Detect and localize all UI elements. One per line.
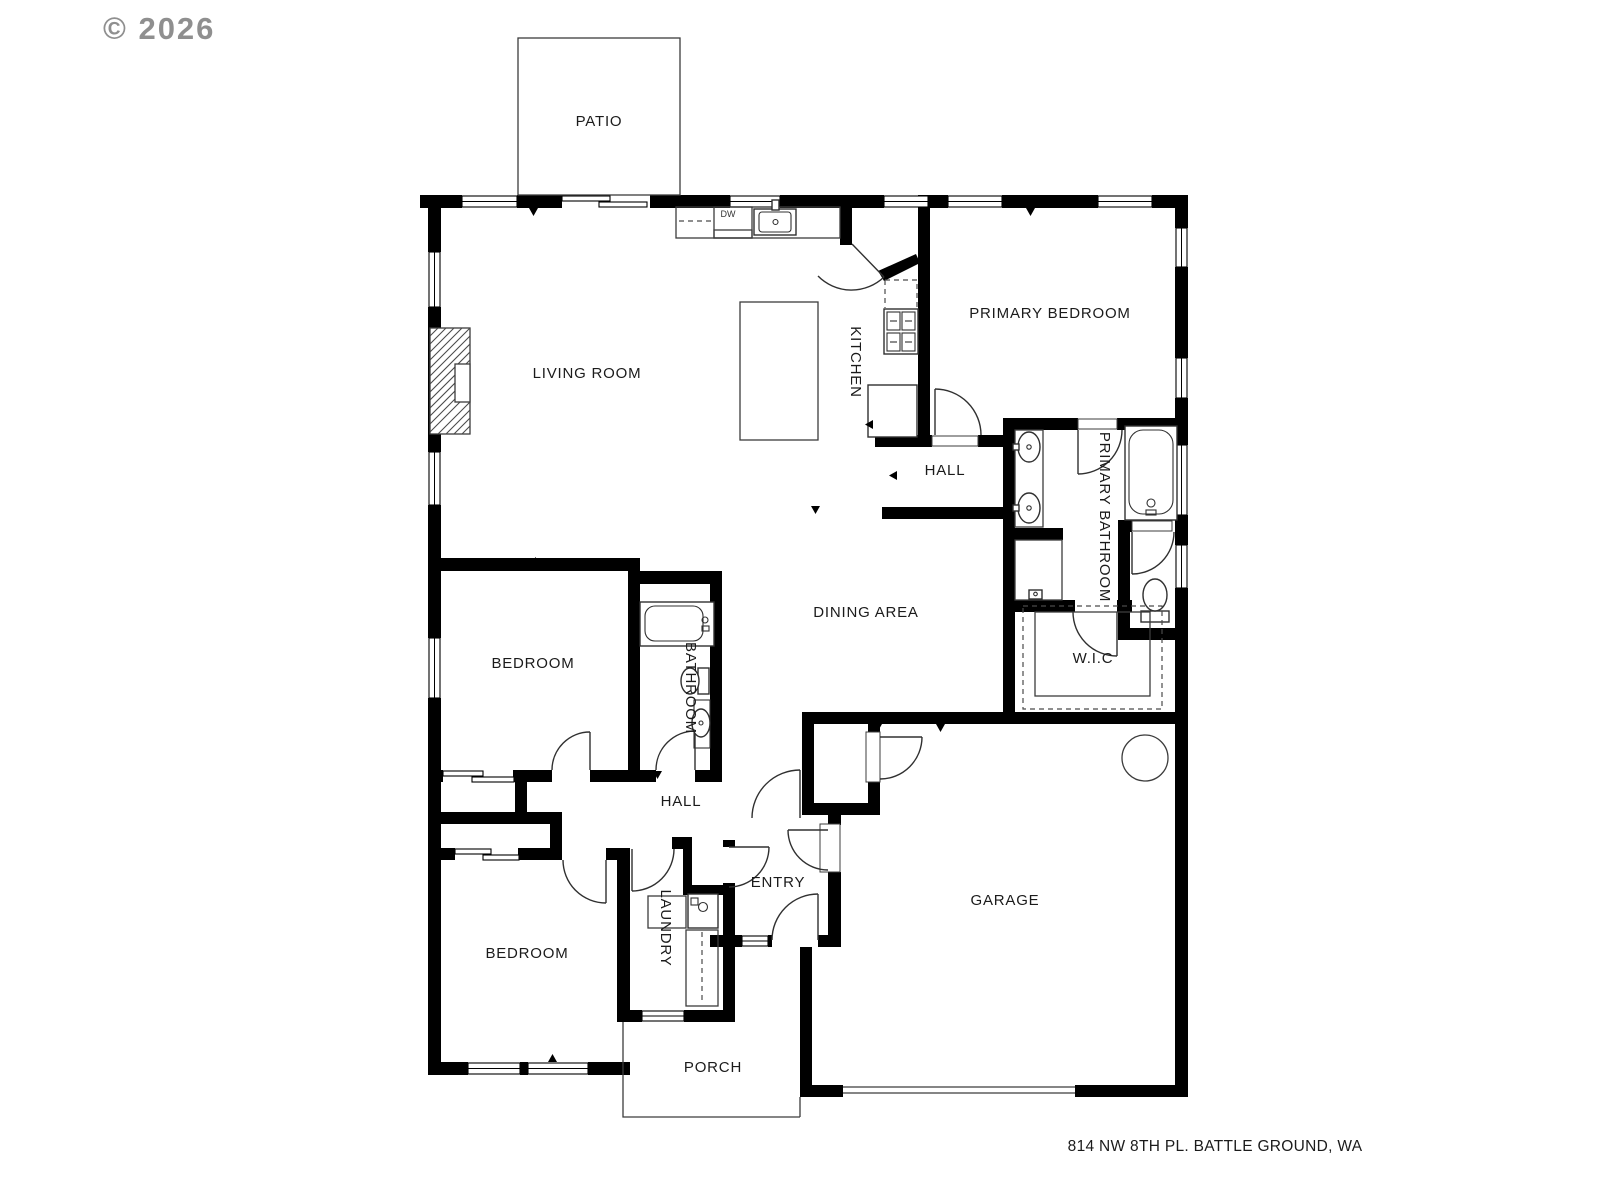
- water-heater: [1122, 735, 1168, 781]
- window: [884, 196, 928, 207]
- closet-sliding-door: [455, 849, 519, 860]
- garage-entry-door: [788, 824, 840, 872]
- front-door-sidelight: [742, 936, 768, 946]
- room-label-entry: ENTRY: [751, 874, 806, 891]
- garage-door: [843, 1087, 1075, 1093]
- room-label-bathroom: BATHROOM: [682, 642, 699, 734]
- front-door: [772, 894, 818, 940]
- floor-plan: PATIO LIVING ROOM KITCHEN PRIMARY BEDROO…: [0, 0, 1600, 1200]
- window: [528, 1063, 588, 1074]
- window: [429, 638, 440, 698]
- wall-arrows: [529, 208, 1035, 1062]
- room-label-patio: PATIO: [576, 113, 623, 130]
- primary-vanity-sinks: [1013, 430, 1043, 527]
- hallway-door: [752, 770, 800, 818]
- room-label-kitchen: KITCHEN: [847, 326, 864, 397]
- bathroom-door: [656, 731, 695, 770]
- hall-bathtub: [640, 602, 714, 646]
- window: [1176, 358, 1187, 398]
- window: [948, 196, 1002, 207]
- window: [642, 1011, 684, 1021]
- room-label-garage: GARAGE: [971, 892, 1040, 909]
- window: [429, 452, 440, 505]
- windows: [429, 196, 1187, 1074]
- room-label-primary-bedroom: PRIMARY BEDROOM: [969, 305, 1130, 322]
- kitchen-island: [740, 302, 818, 440]
- room-label-living-room: LIVING ROOM: [533, 365, 642, 382]
- primary-toilet: [1141, 579, 1169, 622]
- room-label-laundry: LAUNDRY: [657, 889, 674, 966]
- room-label-bedroom-lower: BEDROOM: [485, 945, 568, 962]
- room-label-hall-upper: HALL: [925, 462, 966, 479]
- fireplace: [430, 328, 470, 434]
- pantry-door: [818, 244, 920, 290]
- closet-sliding-door: [443, 771, 514, 782]
- sliding-patio-door: [562, 196, 647, 207]
- room-label-primary-bathroom: PRIMARY BATHROOM: [1096, 432, 1113, 602]
- copyright-watermark: © 2026: [103, 11, 215, 46]
- window: [1176, 545, 1187, 588]
- room-label-hall-lower: HALL: [661, 793, 702, 810]
- water-closet-door: [1132, 521, 1174, 574]
- window: [429, 252, 440, 307]
- bedroom-middle-door: [552, 732, 590, 770]
- window: [468, 1063, 520, 1074]
- garage-closet-door: [866, 732, 922, 782]
- shower: [1015, 540, 1062, 600]
- room-label-porch: PORCH: [684, 1059, 742, 1076]
- primary-bedroom-door: [932, 389, 981, 446]
- bedroom-lower-door: [563, 860, 606, 903]
- refrigerator: [868, 385, 917, 437]
- room-label-wic: W.I.C: [1073, 650, 1114, 667]
- floor-plan-canvas: PATIO LIVING ROOM KITCHEN PRIMARY BEDROO…: [0, 0, 1600, 1200]
- laundry-door: [632, 849, 674, 891]
- window: [1098, 196, 1152, 207]
- address-footer: 814 NW 8TH PL. BATTLE GROUND, WA: [1068, 1138, 1363, 1155]
- window: [462, 196, 517, 207]
- dishwasher-label: DW: [721, 209, 736, 219]
- primary-bathtub: [1125, 426, 1177, 520]
- room-label-bedroom-middle: BEDROOM: [491, 655, 574, 672]
- window: [1176, 228, 1187, 267]
- room-label-dining-area: DINING AREA: [813, 604, 919, 621]
- range-stove: [884, 280, 918, 354]
